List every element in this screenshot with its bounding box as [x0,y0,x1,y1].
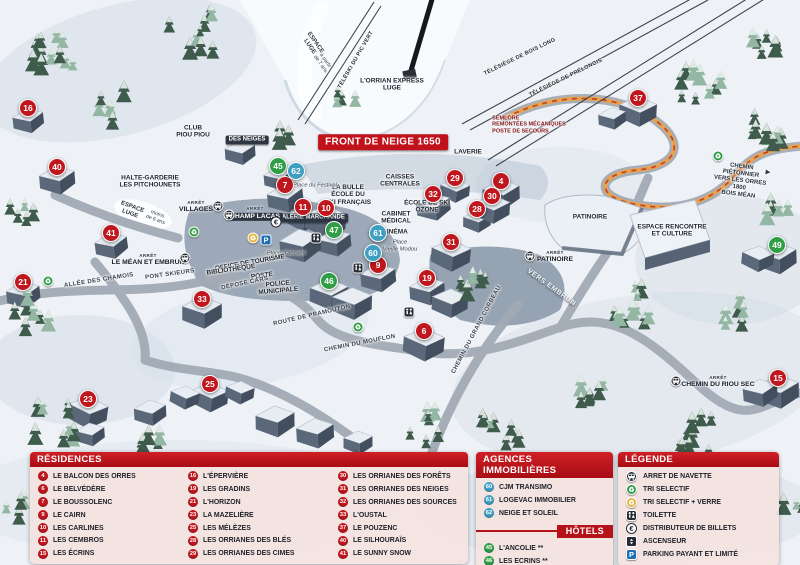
list-item: 30 LES ORRIANES DES FORÊTS [338,470,462,483]
hotel-number-badge: 45 [484,543,494,553]
list-item: 40 LE SILHOURAÏS [338,534,462,547]
residences-col-2: 16 L'ÉPERVIÈRE 19 LES GRADINS 21 L'HORIZ… [188,470,338,560]
list-item: 10 LES CARLINES [38,522,188,535]
recycle-icon: ♻ [353,322,364,333]
legend-title: LÉGENDE [625,454,673,465]
atm-icon: € [626,523,637,534]
residence-number-badge: 31 [338,484,348,494]
agency-name: CJM TRANSIMO [499,484,552,491]
list-item: 11 LES CEMBROS [38,534,188,547]
toilet-icon [353,263,364,274]
list-item: 32 LES ORRIANES DES SOURCES [338,496,462,509]
list-item: 4 LE BALCON DES ORRES [38,470,188,483]
map-label: CHEMIN DU MOUFLON [324,334,397,355]
recycle-glass-icon: ♻ [248,233,259,244]
legend-item: €DISTRIBUTEUR DE BILLETS [626,522,773,535]
recycle-icon: ♻ [713,151,724,162]
residence-name: LES GRADINS [203,486,250,493]
bus-icon [224,210,235,221]
residence-number-badge: 11 [38,536,48,546]
residence-name: LES ORRIANES DES CIMES [203,550,295,557]
recycle-icon: ♻ [626,484,637,495]
residences-col-3: 30 LES ORRIANES DES FORÊTS 31 LES ORRIAN… [338,470,462,560]
map-label: SEMLORE REMONTÉES MÉCANIQUES POSTE DE SE… [492,116,566,135]
list-item: 46 LES ECRINS ** [484,555,607,565]
legend-item: ♻TRI SELECTIF [626,483,773,496]
bus-stop-label: ARRÊTVILLAGES [179,201,213,213]
marker-32: 32 [424,185,442,203]
toilet-icon [311,233,322,244]
residence-name: LES ORRIANES DES BLÉS [203,537,291,544]
list-item: 7 LE BOUSSOLENC [38,496,188,509]
map-label: FRONT DE NEIGE 1650 [318,134,448,150]
elevator-icon [626,536,637,547]
residence-number-badge: 6 [38,484,48,494]
marker-37: 37 [629,89,647,107]
residence-name: LES ORRIANES DES NEIGES [353,486,449,493]
residences-list: 4 LE BALCON DES ORRES 6 LE BELVÉDÈRE 7 L… [30,467,468,564]
map-label: CHEMIN PIÉTONNIER VERS LES ORRES 1800 BO… [708,160,772,202]
list-item: 37 LE POUZENC [338,522,462,535]
residences-panel: RÉSIDENCES 4 LE BALCON DES ORRES 6 LE BE… [30,452,468,564]
residence-number-badge: 15 [38,549,48,559]
hotels-divider [476,530,557,532]
agencies-title: AGENCES IMMOBILIÈRES [483,454,556,476]
residence-name: LES ORRIANES DES FORÊTS [353,473,451,480]
map-label: ÉCOLE DE SKI OZONE [404,200,450,215]
legend-item: ARRET DE NAVETTE [626,470,773,483]
residences-header: RÉSIDENCES [30,452,468,467]
residence-name: LE BOUSSOLENC [53,499,112,506]
list-item: 29 LES ORRIANES DES CIMES [188,547,338,560]
map-label: TÉLÉSIÈGE DE BOIS LONG [483,37,557,77]
residences-title: RÉSIDENCES [37,454,102,465]
marker-28: 28 [468,200,486,218]
legend-item: ♻TRI SELECTIF + VERRE [626,496,773,509]
legend-header: LÉGENDE [618,452,779,467]
residence-number-badge: 29 [188,549,198,559]
residence-name: LE POUZENC [353,525,397,532]
map-label: Place Vieille Modou [383,239,418,252]
list-item: 19 LES GRADINS [188,483,338,496]
marker-30: 30 [483,187,501,205]
hotel-name: L'ANCOLIE ** [499,545,543,552]
agency-number-badge: 60 [484,482,494,492]
legend-item: PPARKING PAYANT ET LIMITÉ [626,548,773,561]
map-label: Place du Festival [293,183,337,190]
residence-name: LA MAZELIÈRE [203,512,254,519]
residence-name: L'OUSTAL [353,512,387,519]
residence-number-badge: 19 [188,484,198,494]
marker-15: 15 [769,369,787,387]
hotels-header: HÔTELS [476,525,613,538]
resort-map: ♻♻♻♻♻€PFRONT DE NEIGE 1650LAVERIECAISSES… [0,0,800,565]
list-item: 41 LE SUNNY SNOW [338,547,462,560]
residence-name: LES ÉCRINS [53,550,94,557]
bus-stop-name: VILLAGES [179,206,213,213]
list-item: 9 LE CAIRN [38,509,188,522]
list-item: 21 L'HORIZON [188,496,338,509]
residence-number-badge: 10 [38,523,48,533]
agency-name: LOGEVAC IMMOBILIER [499,497,576,504]
map-label: moins de 6 ans [145,209,168,227]
marker-19: 19 [418,269,436,287]
residence-name: LES CARLINES [53,525,104,532]
hotel-name: LES ECRINS ** [499,558,548,565]
bus-icon [213,201,224,212]
residence-number-badge: 32 [338,497,348,507]
residence-number-badge: 41 [338,549,348,559]
atm-icon: € [271,217,282,228]
list-item: 62 NEIGE ET SOLEIL [484,507,607,520]
residence-name: LES MÉLÈZES [203,525,251,532]
bus-icon [626,471,637,482]
bus-stop-name: LE MÉAN ET EMBRUN [112,259,185,266]
residence-number-badge: 30 [338,471,348,481]
agencies-header: AGENCES IMMOBILIÈRES [476,452,613,478]
map-label: DES NEIGES [226,136,269,145]
residence-name: LE SUNNY SNOW [353,550,411,557]
map-label: CLUB PIOU PIOU [176,125,210,140]
map-label: PONT SKIEURS [145,268,195,282]
agency-number-badge: 61 [484,495,494,505]
marker-46: 46 [320,272,338,290]
list-item: 31 LES ORRIANES DES NEIGES [338,483,462,496]
bus-stop-arret: ARRÊT [179,201,213,206]
agency-name: NEIGE ET SOLEIL [499,510,558,517]
residence-name: L'ÉPERVIÈRE [203,473,248,480]
legend-item-label: ASCENSEUR [643,538,686,545]
residence-number-badge: 7 [38,497,48,507]
map-label: LAVERIE [454,148,482,155]
bus-stop-label: ARRÊTPATINOIRE [537,251,573,263]
map-label: ESPACE LUGE [117,200,144,221]
residence-name: LE SILHOURAÏS [353,537,406,544]
legend-item-label: TRI SELECTIF [643,486,689,493]
marker-61: 61 [369,224,387,242]
list-item: 61 LOGEVAC IMMOBILIER [484,494,607,507]
bus-icon [671,376,682,387]
list-item: 28 LES ORRIANES DES BLÉS [188,534,338,547]
list-item: 6 LE BELVÉDÈRE [38,483,188,496]
residence-number-badge: 33 [338,510,348,520]
bus-stop-name: CHEMIN DU RIOU SEC [681,381,754,388]
recycle-glass-icon: ♻ [626,497,637,508]
residence-number-badge: 9 [38,510,48,520]
bus-icon [525,251,536,262]
marker-49: 49 [768,236,786,254]
legend-item-label: PARKING PAYANT ET LIMITÉ [643,551,738,558]
agencies-list: 60 CJM TRANSIMO 61 LOGEVAC IMMOBILIER 62… [476,478,613,524]
map-label: PATINOIRE [573,213,607,220]
bus-stop-arret: ARRÊT [537,251,573,256]
hotels-title: HÔTELS [557,525,613,538]
marker-45: 45 [269,157,287,175]
agencies-hotels-panel: AGENCES IMMOBILIÈRES 60 CJM TRANSIMO 61 … [476,452,613,565]
agency-number-badge: 62 [484,508,494,518]
recycle-icon: ♻ [189,227,200,238]
bus-stop-label: ARRÊTCHEMIN DU RIOU SEC [681,376,754,388]
residence-name: LE BALCON DES ORRES [53,473,136,480]
parking-icon: P [626,549,637,560]
residences-col-1: 4 LE BALCON DES ORRES 6 LE BELVÉDÈRE 7 L… [38,470,188,560]
marker-47: 47 [325,221,343,239]
legend-panel: LÉGENDE ARRET DE NAVETTE♻TRI SELECTIF♻TR… [618,452,779,565]
map-label: CABINET MÉDICAL [381,211,411,226]
map-label: CHEMIN DU GRAND CORBEAU [451,285,504,376]
marker-31: 31 [442,233,460,251]
legend-item-label: TOILETTE [643,512,676,519]
residence-name: LE BELVÉDÈRE [53,486,105,493]
residence-number-badge: 4 [38,471,48,481]
residence-name: L'HORIZON [203,499,241,506]
list-item: 33 L'OUSTAL [338,509,462,522]
bus-stop-arret: ARRÊT [681,376,754,381]
residence-number-badge: 16 [188,471,198,481]
residence-number-badge: 23 [188,510,198,520]
residence-number-badge: 40 [338,536,348,546]
marker-62: 62 [287,162,305,180]
legend-item: TOILETTE [626,509,773,522]
marker-25: 25 [201,375,219,393]
marker-21: 21 [14,273,32,291]
bus-stop-name: PATINOIRE [537,256,573,263]
list-item: 15 LES ÉCRINS [38,547,188,560]
toilet-icon [626,510,637,521]
map-label: CAISSES CENTRALES [380,174,420,189]
bus-stop-arret: ARRÊT [227,207,283,212]
bus-icon [180,253,191,264]
toilet-icon [404,307,415,318]
residence-number-badge: 25 [188,523,198,533]
map-label: ESPACE RENCONTRE ET CULTURE [637,224,706,239]
marker-6: 6 [415,322,433,340]
bus-stop-label: ARRÊTLE MÉAN ET EMBRUN [112,254,185,266]
hotels-list: 45 L'ANCOLIE ** 46 LES ECRINS ** 47 L'ES… [476,539,613,565]
marker-16: 16 [19,99,37,117]
marker-33: 33 [193,290,211,308]
parking-icon: P [261,235,272,246]
map-label: ROUTE DE PRAMOUTON [273,304,352,329]
legend-item-label: DISTRIBUTEUR DE BILLETS [643,525,736,532]
residence-number-badge: 21 [188,497,198,507]
legend-item: ASCENSEUR [626,535,773,548]
map-label: ALLÉE DES CHAMOIS [64,272,135,290]
marker-23: 23 [79,390,97,408]
marker-11: 11 [294,198,312,216]
legend-item-label: ARRET DE NAVETTE [643,473,712,480]
list-item: 16 L'ÉPERVIÈRE [188,470,338,483]
list-item: 25 LES MÉLÈZES [188,522,338,535]
marker-41: 41 [102,224,120,242]
residence-number-badge: 28 [188,536,198,546]
legend-item-label: TRI SELECTIF + VERRE [643,499,721,506]
residence-name: LE CAIRN [53,512,86,519]
hotel-number-badge: 46 [484,556,494,565]
map-label: TÉLÉSIÈGE DE PRÉLONGIS [528,58,603,99]
list-item: 60 CJM TRANSIMO [484,481,607,494]
map-label: ► [763,167,772,177]
marker-10: 10 [317,199,335,217]
marker-60: 60 [364,244,382,262]
list-item: 23 LA MAZELIÈRE [188,509,338,522]
residence-name: LES ORRIANES DES SOURCES [353,499,457,506]
map-label: à partir de 7 ans [311,51,332,74]
marker-29: 29 [446,169,464,187]
legend-list: ARRET DE NAVETTE♻TRI SELECTIF♻TRI SELECT… [618,467,779,565]
residence-number-badge: 37 [338,523,348,533]
bus-stop-arret: ARRÊT [112,254,185,259]
recycle-icon: ♻ [43,276,54,287]
list-item: 45 L'ANCOLIE ** [484,542,607,555]
residence-name: LES CEMBROS [53,537,104,544]
map-label: HALTE-GARDERIE LES PITCHOUNETS [119,175,180,190]
map-label: L'ORRIAN EXPRESS LUGE [360,78,424,93]
marker-40: 40 [48,158,66,176]
